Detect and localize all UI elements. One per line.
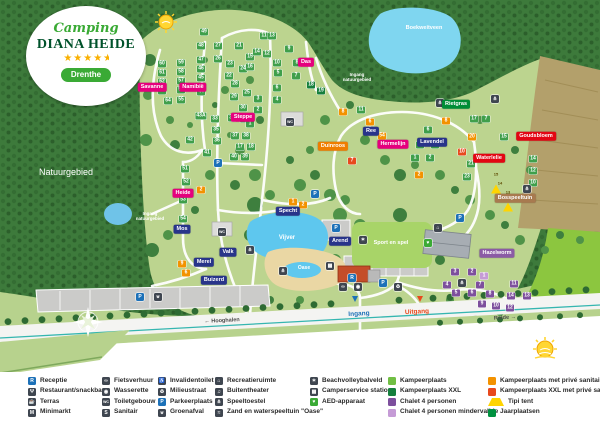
plot-marker: 37: [231, 133, 239, 140]
invalidentoilet-icon: ♿: [158, 377, 166, 385]
legend-item-aed: ♥AED-apparaat: [310, 398, 392, 406]
playground-icon: ⋔: [246, 246, 254, 254]
plot-marker: 64: [164, 98, 172, 105]
plot-marker: 6: [468, 290, 476, 297]
parking-icon: P: [311, 190, 319, 198]
logo-stars: ★★★★★: [26, 53, 146, 64]
legend-item-restaurant: ΨRestaurant/snackbar: [28, 388, 104, 396]
legend-item-minimarkt: MMinimarkt: [28, 409, 104, 417]
groenafval-icon: ⊎: [158, 409, 166, 417]
plot-marker: 62: [158, 79, 166, 86]
plot-marker: 6: [182, 270, 190, 277]
legend-label: Chalet 4 personen mindervalide: [400, 409, 498, 416]
legend-label: Minimarkt: [40, 409, 71, 416]
tipi-number: 15: [491, 172, 501, 177]
beachvolleybalveld-icon: ✶: [310, 377, 318, 385]
road-label: ← Hooghalen: [204, 317, 240, 325]
legend-label: Receptie: [40, 378, 67, 385]
wasserette-icon: ◉: [102, 388, 110, 396]
plot-marker: 20: [468, 134, 476, 141]
legend-item-tipi-tent: Tipi tent: [488, 398, 600, 406]
legend-label: Speeltoestel: [227, 399, 265, 406]
bike-rental-icon: ∞: [339, 283, 347, 291]
plot-marker: 13: [268, 33, 276, 40]
plot-marker: 15: [500, 134, 508, 141]
legend-column: RReceptieΨRestaurant/snackbar☕TerrasMMin…: [28, 377, 104, 417]
legend-label: Buitentheater: [227, 388, 269, 395]
map-text-label: Ingang natuurgebied: [136, 211, 165, 221]
plot-marker: 14: [507, 293, 515, 300]
plot-marker: 47: [197, 57, 205, 64]
plot-marker: 52: [182, 179, 190, 186]
legend-label: Restaurant/snackbar: [40, 388, 104, 395]
plot-marker: 58: [177, 69, 185, 76]
plot-marker: 7: [292, 73, 300, 80]
plot-marker: 5: [274, 70, 282, 77]
speeltoestel-icon: ⋔: [215, 398, 223, 406]
area-label: Waterlelie: [473, 154, 505, 163]
aed-icon: ♥: [424, 239, 432, 247]
playground-icon: ⋔: [279, 267, 287, 275]
legend-item-groenafval: ⊎Groenafval: [158, 409, 214, 417]
plot-marker: 13: [523, 293, 531, 300]
plot-marker: 33: [211, 116, 219, 123]
plot-marker: 4: [273, 97, 281, 104]
plot-marker: 54: [378, 133, 386, 140]
campsite-map: Camping DIANA HEIDE ★★★★★ Drenthe 494860…: [0, 0, 600, 424]
kampeerplaats-prive-swatch: [488, 377, 496, 385]
area-label: Das: [298, 58, 314, 67]
recreation-room-icon: ⌂: [434, 224, 442, 232]
area-label: Hermelijn: [377, 140, 408, 149]
plot-marker: 8: [442, 118, 450, 125]
legend-label: Zand en waterspeeltuin "Oase": [227, 409, 323, 416]
plot-marker: 14: [253, 49, 261, 56]
plot-marker: 7: [348, 158, 356, 165]
camperservice-icon: ▦: [310, 388, 318, 396]
plot-marker: 2: [415, 172, 423, 179]
kampeerplaats-xxl-swatch: [388, 388, 396, 396]
plot-marker: 10: [273, 60, 281, 67]
plot-marker: 12: [506, 305, 514, 312]
plot-marker: 17: [470, 116, 478, 123]
plot-marker: 11: [510, 281, 518, 288]
legend-item-speeltoestel: ⋔Speeltoestel: [215, 398, 323, 406]
legend-label: Wasserette: [114, 388, 148, 395]
aed-icon: ♥: [310, 398, 318, 406]
area-label: Duinroos: [318, 142, 348, 151]
plot-marker: 53: [179, 197, 187, 204]
area-label: Lavendel: [417, 138, 447, 147]
plot-marker: 1: [411, 155, 419, 162]
plot-marker: 3: [451, 269, 459, 276]
toilet-building-icon: WC: [218, 228, 226, 236]
plot-marker: 11: [260, 33, 268, 40]
plot-marker: 8: [486, 291, 494, 298]
kampeerplaats-xxl-prive-swatch: [488, 388, 496, 396]
legend-item-receptie: RReceptie: [28, 377, 104, 385]
legend-item-buitentheater: ♫Buitentheater: [215, 388, 323, 396]
tipi-number: 13: [503, 190, 513, 195]
legend-label: Fietsverhuur: [114, 378, 153, 385]
plot-marker: 12: [263, 51, 271, 58]
parking-icon: P: [136, 293, 144, 301]
jaarplaatsen-swatch: [488, 409, 496, 417]
legend-item-kampeerplaats: Kampeerplaats: [388, 377, 498, 385]
legend-column: ✶Beachvolleybalveld▦Camperservice statio…: [310, 377, 392, 406]
legend-item-sanitair: SSanitair: [102, 409, 155, 417]
plot-marker: 56: [177, 87, 185, 94]
legend-label: Beachvolleybalveld: [322, 378, 382, 385]
plot-marker: 8: [293, 60, 301, 67]
plot-marker: 24: [239, 66, 247, 73]
plot-marker: 59: [177, 60, 185, 67]
laundry-icon: ◉: [354, 283, 362, 291]
plot-marker: 29: [230, 94, 238, 101]
area-label: Merel: [194, 258, 214, 267]
area-label: Buizerd: [201, 276, 227, 285]
plot-marker: 57: [177, 78, 185, 85]
green-waste-icon: ⊎: [154, 293, 162, 301]
plot-marker: 26: [214, 56, 222, 63]
area-label: Hazelworm: [479, 249, 514, 258]
beach-volleyball-icon: ✶: [359, 236, 367, 244]
tipi-tent-marker: 13: [503, 186, 513, 195]
plot-marker: 51: [181, 166, 189, 173]
plot-marker: 7: [482, 116, 490, 123]
legend-label: Milieustraat: [170, 388, 206, 395]
playground-icon: ⋔: [491, 95, 499, 103]
plot-marker: 3: [254, 96, 262, 103]
legend-item-zand-waterspeeltuin: ≈Zand en waterspeeltuin "Oase": [215, 409, 323, 417]
map-legend: RReceptieΨRestaurant/snackbar☕TerrasMMin…: [0, 372, 600, 424]
road-label: Uitgang: [405, 308, 430, 316]
area-label: Ree: [363, 127, 379, 136]
toiletgebouw-icon: WC: [102, 398, 110, 406]
legend-label: Invalidentoilet: [170, 378, 214, 385]
legend-item-toiletgebouw: WCToiletgebouw: [102, 398, 155, 406]
legend-item-kampeerplaats-xxl-prive: Kampeerplaats XXL met privé sanitair: [488, 388, 600, 396]
area-label: Valk: [219, 248, 236, 257]
plot-marker: 16: [246, 64, 254, 71]
plot-marker: 8: [339, 109, 347, 116]
plot-marker: 36: [213, 138, 221, 145]
plot-marker: 27: [214, 43, 222, 50]
legend-item-milieustraat: ♻Milieustraat: [158, 388, 214, 396]
plot-marker: 32: [240, 116, 248, 123]
legend-label: Kampeerplaats XXL: [400, 388, 461, 395]
road-label: Ingang: [348, 310, 370, 318]
map-text-label: Natuurgebied: [39, 167, 93, 177]
plot-marker: 1: [289, 199, 297, 206]
legend-item-beachvolleybalveld: ✶Beachvolleybalveld: [310, 377, 392, 385]
zand-waterspeeltuin-icon: ≈: [215, 409, 223, 417]
plot-marker: 5: [452, 290, 460, 297]
sun-icon: [155, 11, 177, 33]
logo-script: Camping: [26, 21, 146, 36]
area-label: Mos: [174, 225, 191, 234]
plot-marker: 6: [366, 119, 374, 126]
legend-label: Kampeerplaats XXL met privé sanitair: [500, 388, 600, 395]
parking-icon: P: [379, 279, 387, 287]
plot-marker: 6: [424, 127, 432, 134]
legend-item-terras: ☕Terras: [28, 398, 104, 406]
plot-marker: 10: [492, 303, 500, 310]
legend-label: Parkeerplaats: [170, 399, 213, 406]
legend-item-recreatieruimte: ⌂Recreatieruimte: [215, 377, 323, 385]
tipi-tent-icon: [488, 398, 504, 406]
plot-marker: 9: [285, 46, 293, 53]
legend-label: Terras: [40, 399, 59, 406]
legend-label: Kampeerplaats met privé sanitair: [500, 378, 600, 385]
buitentheater-icon: ♫: [215, 388, 223, 396]
plot-marker: 55: [177, 97, 185, 104]
plot-marker: 10: [458, 149, 466, 156]
legend-label: Groenafval: [170, 409, 204, 416]
plot-marker: 43A: [195, 113, 206, 120]
terras-icon: ☕: [28, 398, 36, 406]
sun-icon: [533, 337, 557, 358]
legend-item-fietsverhuur: ∞Fietsverhuur: [102, 377, 155, 385]
plot-marker: 2: [254, 107, 262, 114]
legend-column: ⌂Recreatieruimte♫Buitentheater⋔Speeltoes…: [215, 377, 323, 417]
plot-marker: 9: [178, 261, 186, 268]
plot-marker: 61: [158, 70, 166, 77]
logo-region-badge: Drenthe: [61, 68, 111, 82]
area-label: Steppe: [231, 113, 255, 122]
area-label: Arend: [329, 237, 351, 246]
legend-item-invalidentoilet: ♿Invalidentoilet: [158, 377, 214, 385]
plot-marker: 49: [200, 29, 208, 36]
plot-marker: 54: [179, 216, 187, 223]
tipi-number: 14: [495, 181, 505, 186]
plot-marker: 30: [239, 105, 247, 112]
plot-marker: 21: [467, 161, 475, 168]
plot-marker: 15: [246, 54, 254, 61]
legend-column: KampeerplaatsKampeerplaats XXLChalet 4 p…: [388, 377, 498, 417]
legend-item-wasserette: ◉Wasserette: [102, 388, 155, 396]
toilet-building-icon: WC: [286, 118, 294, 126]
legend-item-chalet-mindervalide: Chalet 4 personen mindervalide: [388, 409, 498, 417]
recreatieruimte-icon: ⌂: [215, 377, 223, 385]
camper-service-icon: ▦: [326, 262, 334, 270]
map-text-label: Oase: [298, 265, 310, 271]
map-text-label: Sport en spel: [374, 240, 409, 246]
kampeerplaats-swatch: [388, 377, 396, 385]
plot-marker: 45: [197, 75, 205, 82]
legend-item-parkeerplaats: PParkeerplaats: [158, 398, 214, 406]
legend-item-chalet: Chalet 4 personen: [388, 398, 498, 406]
playground-icon: ⋔: [436, 99, 444, 107]
plot-marker: 9: [478, 301, 486, 308]
plot-marker: 23: [226, 61, 234, 68]
milieustraat-icon: ♻: [158, 388, 166, 396]
legend-label: Chalet 4 personen: [400, 399, 456, 406]
plot-marker: 28: [231, 81, 239, 88]
map-text-label: Boekweitveen: [406, 25, 443, 31]
plot-marker: 2: [468, 269, 476, 276]
parking-icon: P: [214, 159, 222, 167]
legend-label: Tipi tent: [508, 399, 533, 406]
tipi-tent-marker: 14: [495, 177, 505, 186]
legend-item-kampeerplaats-xxl: Kampeerplaats XXL: [388, 388, 498, 396]
plot-marker: 40: [230, 154, 238, 161]
plot-marker: 17: [236, 144, 244, 151]
parking-icon: P: [456, 214, 464, 222]
road-label: Rolde →: [494, 314, 517, 322]
area-label: Bosspeeltuin: [495, 194, 536, 203]
legend-column: Kampeerplaats met privé sanitairKampeerp…: [488, 377, 600, 417]
fietsverhuur-icon: ∞: [102, 377, 110, 385]
plot-marker: 38: [242, 133, 250, 140]
legend-label: AED-apparaat: [322, 399, 365, 406]
plot-marker: 48: [197, 43, 205, 50]
plot-marker: 44: [197, 89, 205, 96]
plot-marker: 23: [463, 174, 471, 181]
plot-marker: 6: [273, 85, 281, 92]
tipi-tent-marker: 15: [491, 168, 501, 177]
legend-label: Jaarplaatsen: [500, 409, 540, 416]
plot-marker: 18: [307, 82, 315, 89]
recycling-icon: ♻: [394, 283, 402, 291]
plot-marker: 63: [158, 88, 166, 95]
plot-marker: 1: [480, 273, 488, 280]
plot-marker: 1: [246, 121, 254, 128]
plot-marker: 60: [158, 61, 166, 68]
restaurant-icon: Ψ: [28, 388, 36, 396]
legend-label: Kampeerplaats: [400, 378, 447, 385]
plot-marker: 3: [416, 142, 424, 149]
legend-label: Camperservice station: [322, 388, 392, 395]
plot-marker: 10: [529, 180, 537, 187]
map-text-label: Vijver: [279, 235, 295, 241]
legend-item-camperservice: ▦Camperservice station: [310, 388, 392, 396]
plot-marker: 41: [203, 150, 211, 157]
plot-marker: 46: [197, 66, 205, 73]
chalet-swatch: [388, 398, 396, 406]
area-label: Rietgras: [442, 100, 470, 109]
playground-icon: ⋔: [523, 185, 531, 193]
plot-marker: 21: [235, 43, 243, 50]
legend-label: Sanitair: [114, 409, 138, 416]
plot-marker: 19: [317, 88, 325, 95]
plot-marker: 18: [247, 144, 255, 151]
legend-column: ♿Invalidentoilet♻MilieustraatPParkeerpla…: [158, 377, 214, 417]
plot-marker: 4: [431, 142, 439, 149]
plot-marker: 39: [241, 154, 249, 161]
area-label: Heide: [173, 189, 194, 198]
parkeerplaats-icon: P: [158, 398, 166, 406]
legend-item-jaarplaatsen: Jaarplaatsen: [488, 409, 600, 417]
legend-label: Recreatieruimte: [227, 378, 276, 385]
plot-marker: 34: [228, 115, 236, 122]
plot-marker: 2: [299, 202, 307, 209]
plot-marker: 11: [357, 107, 365, 114]
chalet-mindervalide-swatch: [388, 409, 396, 417]
plot-marker: 4: [443, 282, 451, 289]
playground-icon: ⋔: [458, 279, 466, 287]
sanitair-icon: S: [102, 409, 110, 417]
campsite-logo: Camping DIANA HEIDE ★★★★★ Drenthe: [26, 6, 146, 106]
area-label: Goudsbloem: [516, 132, 556, 141]
legend-item-kampeerplaats-prive: Kampeerplaats met privé sanitair: [488, 377, 600, 385]
reception-icon: R: [348, 274, 356, 282]
plot-marker: 2: [197, 187, 205, 194]
plot-marker: 12: [529, 168, 537, 175]
plot-marker: 2: [426, 155, 434, 162]
plot-marker: 22: [225, 73, 233, 80]
plot-marker: 7: [476, 282, 484, 289]
legend-column: ∞Fietsverhuur◉WasseretteWCToiletgebouwSS…: [102, 377, 155, 417]
logo-title: DIANA HEIDE: [26, 37, 146, 53]
plot-marker: 35: [212, 127, 220, 134]
plot-marker: 25: [243, 90, 251, 97]
compass-rose: [73, 307, 103, 337]
area-label: Savanne: [138, 83, 167, 92]
plot-marker: 14: [529, 156, 537, 163]
area-label: Specht: [276, 207, 300, 216]
plot-marker: 42: [186, 137, 194, 144]
plot-marker: 5: [366, 127, 374, 134]
map-text-label: Ingang natuurgebied: [343, 72, 372, 82]
area-label: Namibië: [179, 83, 206, 92]
legend-label: Toiletgebouw: [114, 399, 155, 406]
minimarkt-icon: M: [28, 409, 36, 417]
parking-icon: P: [332, 224, 340, 232]
receptie-icon: R: [28, 377, 36, 385]
